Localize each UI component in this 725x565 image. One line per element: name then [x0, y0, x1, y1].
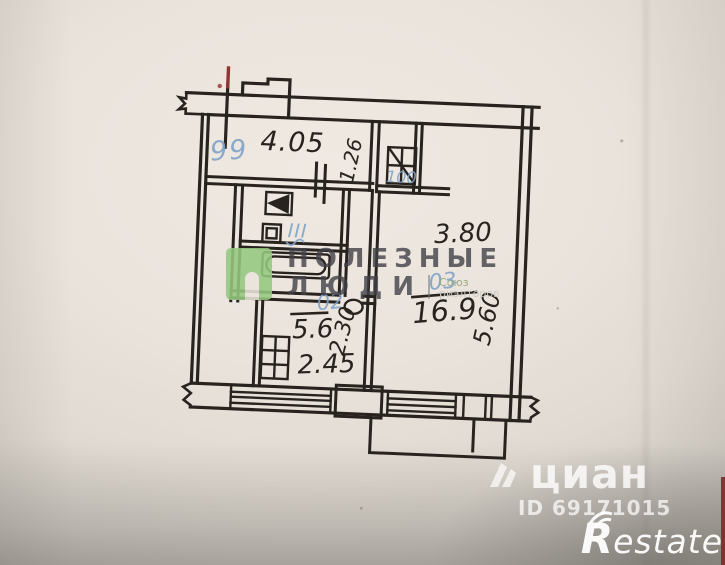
- balcony-outline: [370, 417, 506, 459]
- dim-hall-width: 4.05: [260, 126, 325, 160]
- red-edge-mark: [721, 477, 725, 565]
- cian-name: циан: [530, 454, 649, 494]
- stove-symbol: [261, 336, 290, 379]
- room-num-vent-shaft: 100: [386, 167, 417, 187]
- agency-divider: [428, 275, 430, 299]
- cian-logo-icon: [486, 459, 522, 489]
- red-pen-mark: [217, 66, 228, 89]
- sink-symbol: [262, 224, 281, 243]
- dim-hall-opening: 1.26: [334, 136, 367, 185]
- restate-watermark: R estate: [581, 519, 723, 561]
- agency-name-line2: ЛЮДИ: [287, 273, 424, 301]
- restate-name: estate: [613, 522, 723, 561]
- agency-watermark: ПОЛЕЗНЫЕ ЛЮДИ Союз риэлторов: [226, 245, 503, 301]
- cian-watermark: циан ID 69171015: [486, 454, 671, 520]
- room-num-hall: 99: [209, 134, 249, 167]
- toilet-symbol: [265, 192, 292, 215]
- scanned-floor-plan-photo: 4.05 1.26 3.80 16.9 5.60 5.6 2.45 2.30 9…: [0, 0, 725, 565]
- agency-tagline-line2: риэлторов: [439, 288, 500, 299]
- agency-name-line1: ПОЛЕЗНЫЕ: [287, 245, 503, 273]
- agency-logo-icon: [226, 248, 272, 300]
